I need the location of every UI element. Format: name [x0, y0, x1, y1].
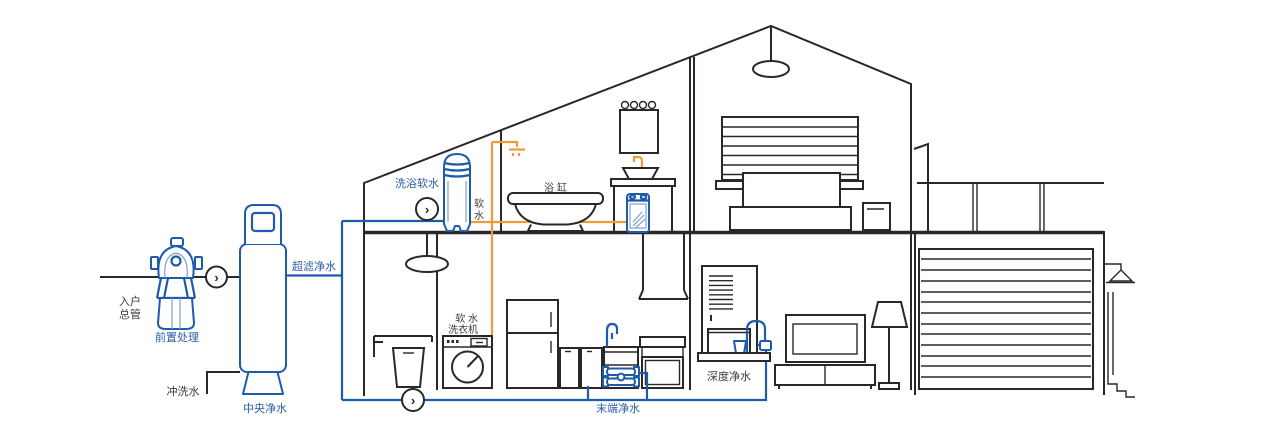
nightstand	[863, 203, 890, 230]
mirror-lights	[622, 102, 656, 109]
terminal-ro-device	[603, 367, 639, 387]
fridge	[507, 300, 558, 388]
dispenser-tap	[760, 341, 771, 350]
label-bathtub: 浴缸	[544, 181, 570, 194]
bathtub	[508, 193, 603, 231]
laundry-tub	[393, 348, 424, 387]
washing-machine	[443, 336, 492, 388]
label-inlet-main-line1: 入户	[119, 294, 141, 308]
bedroom	[716, 27, 890, 230]
bed-headboard	[743, 173, 840, 207]
garage	[919, 249, 1135, 397]
svg-text:›: ›	[214, 270, 218, 285]
pendant-lamp-icon	[753, 61, 789, 77]
water-cup-icon	[734, 341, 746, 354]
vanity-purifier-device	[627, 194, 649, 232]
water-system-house-diagram: › › › 入户 总管 前置处理 中央净水 冲洗水 超滤净水 洗浴软水 软 水 …	[0, 0, 1280, 434]
tv-stand	[775, 365, 875, 389]
bathtub-rim	[508, 193, 603, 204]
shower-head-icon	[509, 150, 525, 157]
tv	[786, 315, 865, 362]
label-soft-washer-line2: 洗衣机	[448, 323, 478, 336]
label-terminal-purifier: 末端净水	[596, 401, 640, 415]
label-bath-softener: 洗浴软水	[395, 176, 439, 190]
shower-feed	[492, 142, 517, 147]
range-hood	[639, 234, 688, 299]
terrace-railing	[914, 144, 1104, 231]
deep-purifier-cabinet	[702, 266, 757, 353]
laundry-pendant-lamp-icon	[406, 256, 448, 272]
central-purifier-body	[240, 244, 286, 372]
label-soft-water-vert-2: 水	[474, 210, 484, 222]
laundry-room	[374, 233, 492, 388]
label-inlet-main-line2: 总管	[119, 307, 141, 321]
outside-steps	[1108, 375, 1135, 397]
label-central-purifier: 中央净水	[243, 401, 287, 415]
central-purifier-skirt	[243, 370, 283, 394]
label-flush-water: 冲洗水	[167, 384, 200, 398]
kitchen-cabinets	[560, 348, 602, 388]
bath-softener-device	[444, 154, 470, 231]
outdoor-lamp-icon	[1104, 264, 1135, 283]
vanity-basin	[623, 168, 658, 179]
label-pre-treatment: 前置处理	[155, 330, 199, 344]
vanity-top	[611, 168, 675, 186]
label-ultrafiltration: 超滤净水	[292, 259, 336, 273]
roof-stub-wall	[914, 144, 928, 231]
central-purifier-cap	[245, 205, 281, 244]
label-soft-water-vert-1: 软	[474, 197, 484, 210]
flush-drain-pipe	[207, 372, 240, 394]
label-soft-washer-line1: 软 水	[455, 312, 478, 325]
svg-text:›: ›	[425, 202, 429, 217]
mirror	[620, 110, 658, 153]
vanity-counter	[611, 179, 675, 186]
central-purifier-device	[240, 205, 286, 394]
dispenser-counter	[698, 353, 770, 361]
downspout	[1108, 292, 1135, 397]
kitchen	[507, 234, 688, 388]
pre-treatment-device	[151, 238, 202, 329]
kitchen-faucet-icon	[607, 324, 617, 347]
bed-base	[730, 207, 851, 230]
svg-text:›: ›	[411, 393, 415, 408]
floor-lamp	[872, 302, 907, 389]
label-deep-purifier: 深度净水	[707, 369, 751, 383]
